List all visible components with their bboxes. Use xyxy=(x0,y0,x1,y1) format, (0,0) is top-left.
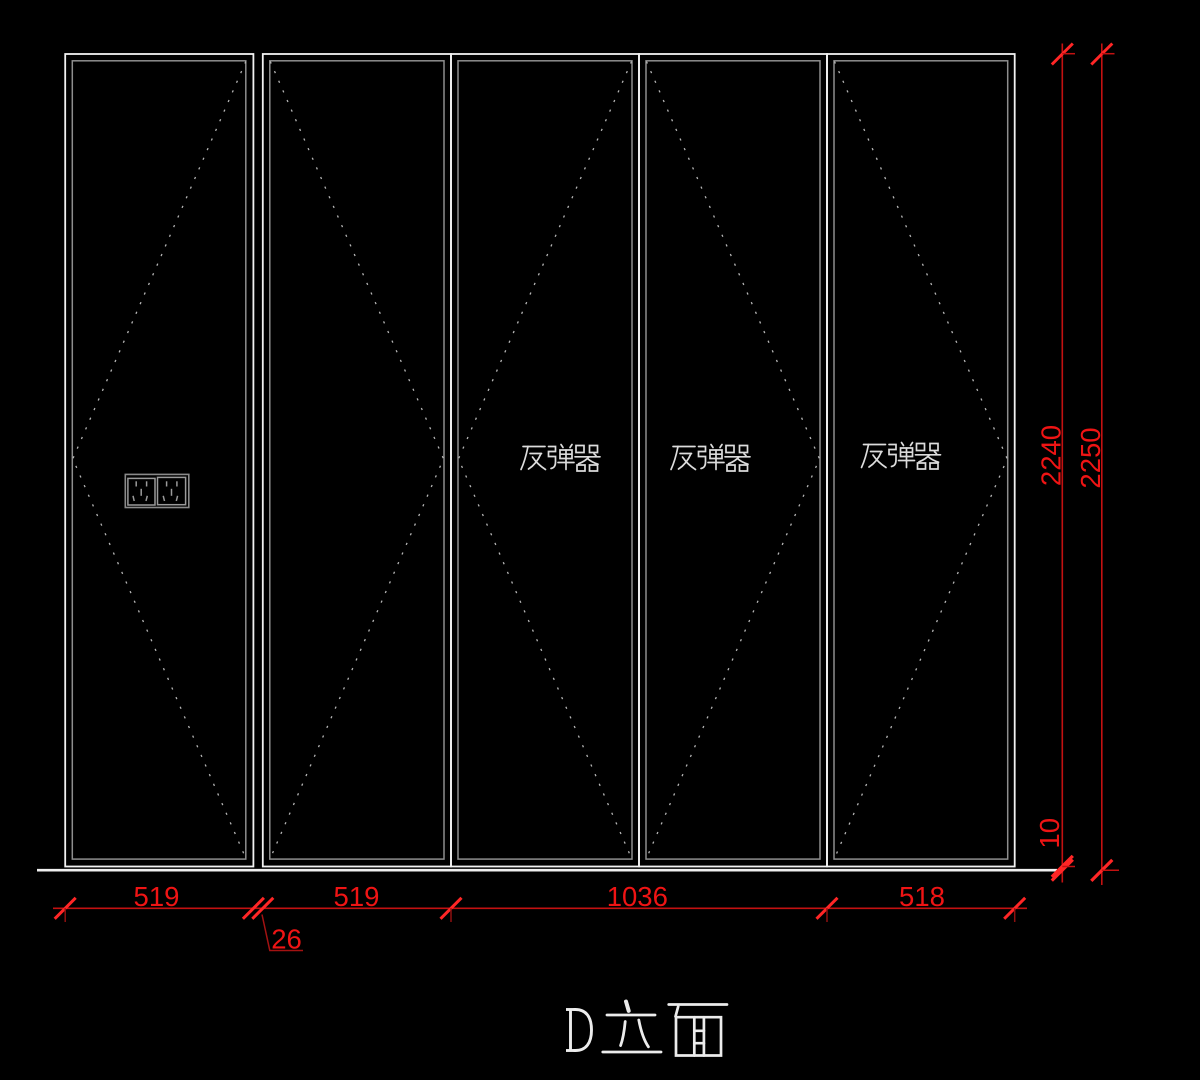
svg-text:26: 26 xyxy=(271,924,302,955)
svg-text:519: 519 xyxy=(334,881,380,912)
svg-text:2250: 2250 xyxy=(1075,427,1106,488)
svg-text:1036: 1036 xyxy=(607,881,668,912)
svg-text:10: 10 xyxy=(1034,818,1065,849)
svg-text:518: 518 xyxy=(899,881,945,912)
svg-text:2240: 2240 xyxy=(1036,425,1067,486)
svg-text:519: 519 xyxy=(134,881,180,912)
